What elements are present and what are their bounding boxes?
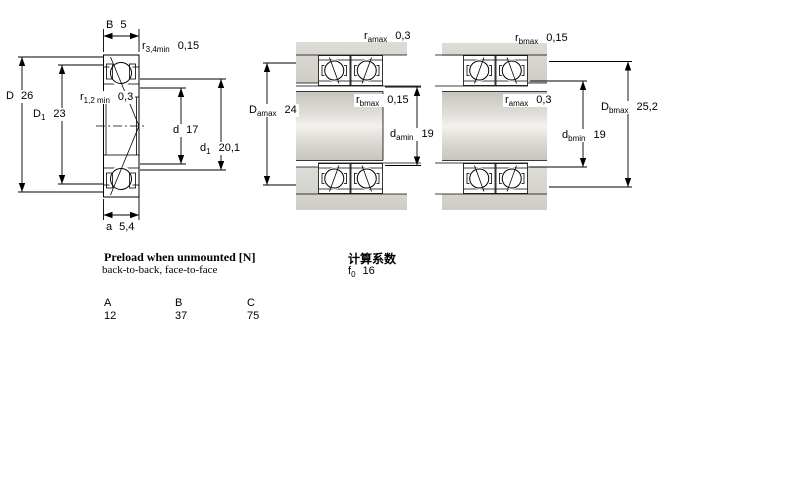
dim-subscript: bmax xyxy=(360,99,380,108)
dim-B xyxy=(104,29,140,52)
dim-value: 0,3 xyxy=(118,91,133,103)
dim-D1 xyxy=(58,65,103,184)
label-damin: damin19 xyxy=(388,128,436,141)
housing-top xyxy=(442,43,547,83)
dim-subscript: 1 xyxy=(206,147,210,156)
dim-value: 16 xyxy=(363,265,375,277)
label-ramax-b: ramax0,3 xyxy=(503,94,554,107)
preload-value-B: 37 xyxy=(175,310,187,322)
label-rbmax-b: rbmax0,15 xyxy=(515,32,568,45)
dim-value: 19 xyxy=(593,129,605,141)
dim-value: 20,1 xyxy=(219,142,240,154)
dim-value: 24 xyxy=(285,104,297,116)
arrangement-b-drawing xyxy=(435,43,632,210)
dim-symbol: D xyxy=(6,90,14,102)
housing-bottom xyxy=(296,167,407,210)
dim-value: 0,15 xyxy=(546,32,567,44)
preload-title: Preload when unmounted [N] xyxy=(104,250,255,265)
label-D: D26 xyxy=(4,90,35,103)
dim-value: 0,15 xyxy=(178,40,199,52)
dim-value: 0,3 xyxy=(536,94,551,106)
label-r34min: r3,4min0,15 xyxy=(142,40,199,53)
preload-subtitle: back-to-back, face-to-face xyxy=(102,264,217,276)
dim-subscript: bmin xyxy=(568,134,585,143)
dim-subscript: bmax xyxy=(609,106,629,115)
preload-value-C: 75 xyxy=(247,310,259,322)
preload-col-A: A xyxy=(104,297,111,309)
dim-subscript: 0 xyxy=(351,270,355,279)
dim-value: 19 xyxy=(421,128,433,140)
dim-subscript: 1,2 min xyxy=(84,96,110,105)
dim-value: 0,3 xyxy=(395,30,410,42)
label-d1: d120,1 xyxy=(198,142,242,155)
dim-symbol: B xyxy=(106,19,113,31)
preload-value-A: 12 xyxy=(104,310,116,322)
dim-symbol: D xyxy=(33,108,41,120)
bearing-specification-page: B5 r3,4min0,15 D26 D123 r1,2 min0,3 d17 … xyxy=(0,0,800,500)
dim-symbol: D xyxy=(249,104,257,116)
dim-Damax xyxy=(263,63,296,185)
dim-symbol: d xyxy=(173,124,179,136)
dim-subscript: amax xyxy=(509,99,529,108)
dim-value: 26 xyxy=(21,90,33,102)
label-dbmin: dbmin19 xyxy=(560,129,608,142)
dim-value: 5 xyxy=(120,19,126,31)
dim-symbol: D xyxy=(601,101,609,113)
label-Damax: Damax24 xyxy=(247,104,299,117)
label-d: d17 xyxy=(171,124,200,137)
dim-value: 0,15 xyxy=(387,94,408,106)
housing-bottom xyxy=(442,167,547,210)
label-r12min: r1,2 min0,3 xyxy=(78,91,135,104)
dim-value: 17 xyxy=(186,124,198,136)
dim-subscript: amin xyxy=(396,133,413,142)
dim-subscript: amax xyxy=(257,109,277,118)
label-ramax-a: ramax0,3 xyxy=(364,30,411,43)
preload-col-B: B xyxy=(175,297,182,309)
dim-value: 25,2 xyxy=(637,101,658,113)
label-rbmax-a: rbmax0,15 xyxy=(354,94,411,107)
label-f0: f016 xyxy=(348,265,375,277)
dim-value: 23 xyxy=(53,108,65,120)
dim-Dbmax xyxy=(549,62,632,188)
preload-col-C: C xyxy=(247,297,255,309)
dim-value: 5,4 xyxy=(119,221,134,233)
dim-symbol: a xyxy=(106,221,112,233)
dim-subscript: amax xyxy=(368,35,388,44)
dim-subscript: 3,4min xyxy=(146,45,170,54)
label-D1: D123 xyxy=(31,108,68,121)
dim-subscript: bmax xyxy=(519,37,539,46)
housing-top xyxy=(296,42,407,83)
arrangement-a-drawing xyxy=(263,42,421,210)
dim-D xyxy=(18,57,103,192)
label-B: B5 xyxy=(106,19,126,32)
label-a: a5,4 xyxy=(106,221,134,234)
dim-subscript: 1 xyxy=(41,113,45,122)
label-Dbmax: Dbmax25,2 xyxy=(599,101,660,114)
